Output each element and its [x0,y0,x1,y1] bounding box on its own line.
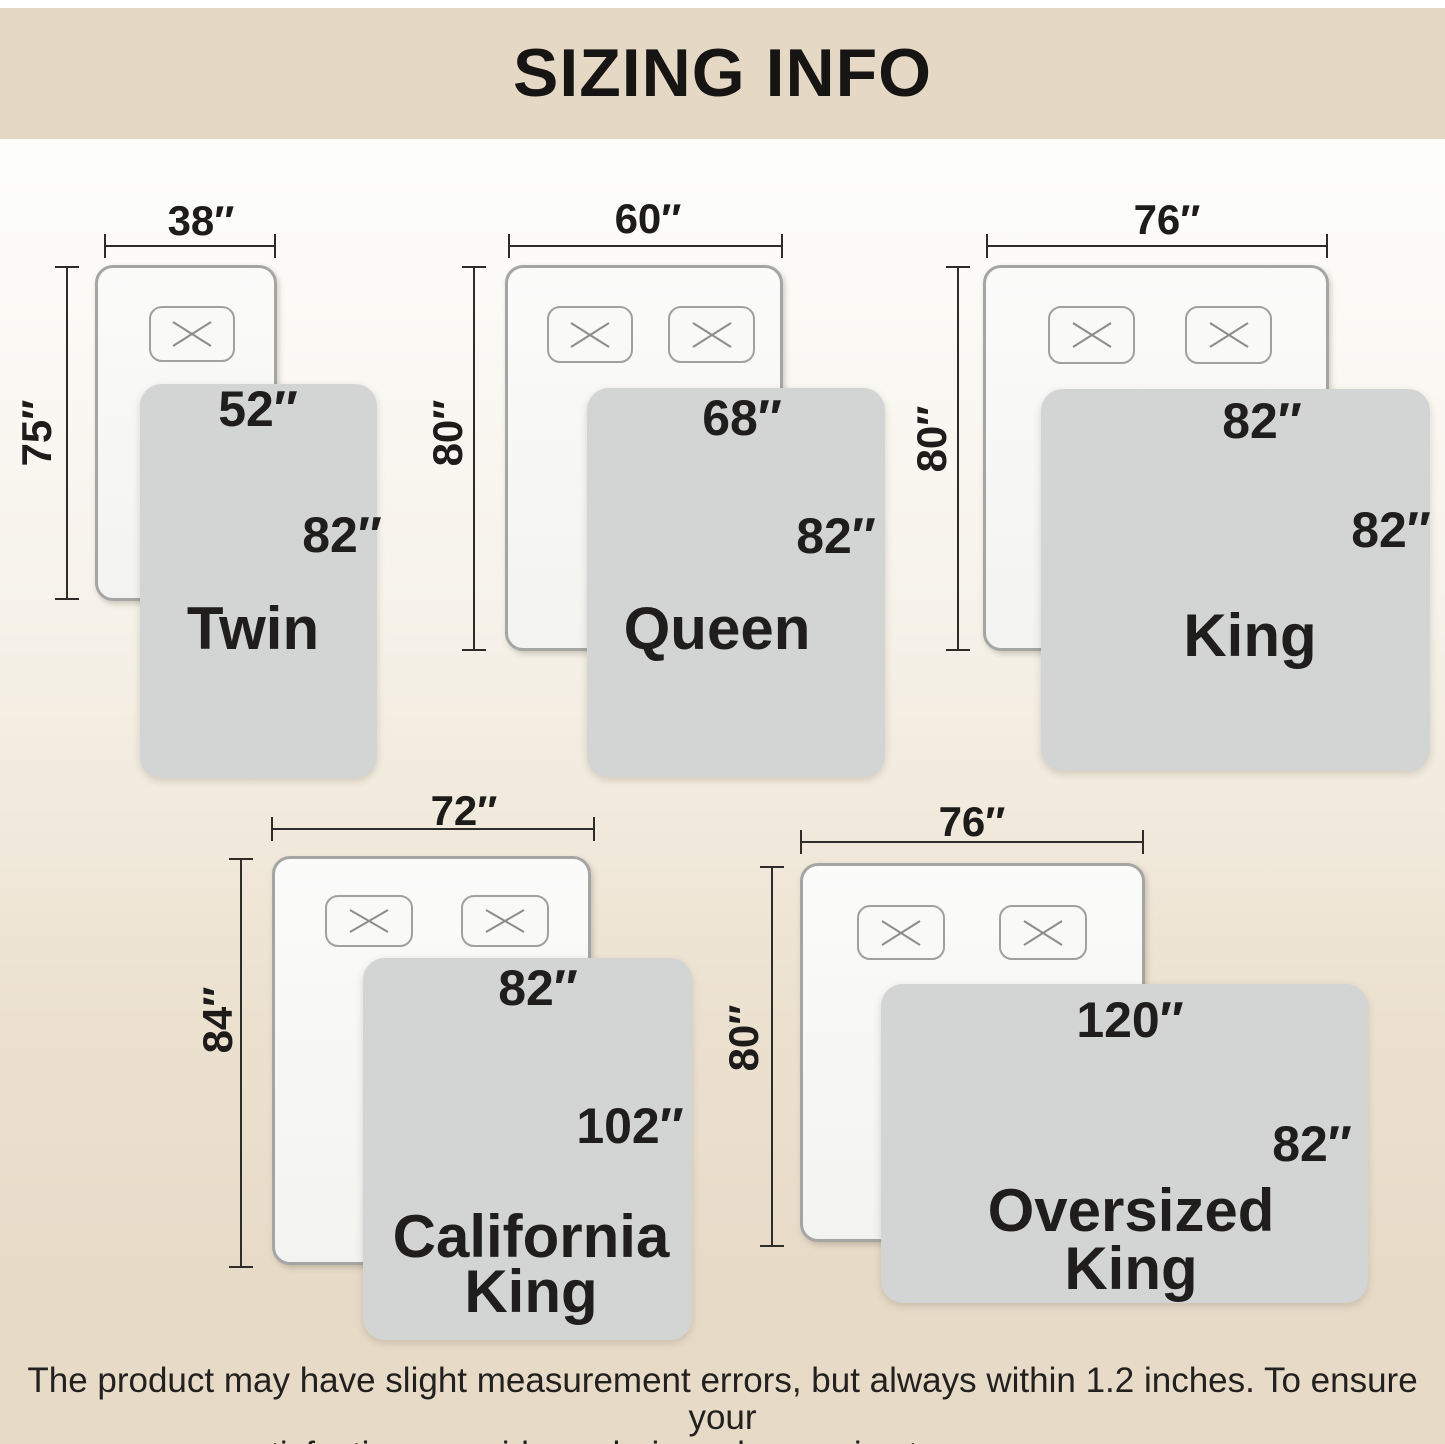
disclaimer-line-2: satisfaction, consider ordering a larger… [0,1436,1445,1444]
bed-width-dimension-line [800,841,1144,843]
size-name: California King [393,1209,670,1319]
pillow-icon [461,895,549,947]
size-name-line: King [988,1240,1275,1298]
bed-width-dimension-line [986,245,1328,247]
bed-length-dimension-line [771,866,773,1247]
bed-length-dimension-line [66,266,68,600]
pillow-icon [1185,306,1272,364]
header-band: SIZING INFO [0,8,1445,139]
bed-width-dimension-line [508,245,783,247]
blanket-length-label: 82″ [1351,501,1431,559]
pillow-icon [149,306,235,362]
size-name: Queen [624,600,811,658]
pillow-x-icon [483,907,527,935]
size-name-line: King [1183,607,1316,665]
bed-length-label: 80″ [720,1005,768,1072]
blanket-length-label: 82″ [1272,1115,1352,1173]
blanket-width-label: 82″ [1222,392,1302,450]
blanket-length-label: 82″ [302,506,382,564]
pillow-icon [668,306,755,363]
disclaimer-line-1: The product may have slight measurement … [0,1362,1445,1436]
blanket-width-label: 52″ [218,380,298,438]
sizing-info-infographic: SIZING INFO 38″ 75″ 52″ 82″ Twin 60″ 80″… [0,0,1445,1444]
pillow-x-icon [879,918,923,948]
blanket-width-label: 82″ [498,959,578,1017]
bed-width-label: 76″ [1134,196,1201,244]
blanket-width-label: 68″ [702,389,782,447]
pillow-icon [547,306,633,363]
blanket-width-label: 120″ [1076,991,1183,1049]
size-name-line: Twin [187,600,319,658]
bed-length-dimension-line [473,266,475,651]
blanket-shape [140,384,377,778]
pillow-x-icon [568,320,612,350]
bed-length-label: 80″ [908,406,956,473]
pillow-x-icon [690,320,734,350]
pillow-icon [1048,306,1135,364]
size-name-line: King [393,1264,670,1319]
bed-width-dimension-line [104,245,276,247]
bed-width-label: 76″ [939,798,1006,846]
size-name-line: Queen [624,600,811,658]
bed-length-label: 75″ [13,400,61,467]
bed-length-dimension-line [240,858,242,1268]
pillow-x-icon [347,907,391,935]
disclaimer-text: The product may have slight measurement … [0,1362,1445,1444]
page-title: SIZING INFO [0,8,1445,139]
pillow-x-icon [1021,918,1065,948]
pillow-icon [999,905,1087,960]
bed-width-label: 60″ [615,195,682,243]
pillow-x-icon [170,319,214,349]
size-name-line: California [393,1209,670,1264]
blanket-length-label: 102″ [576,1097,683,1155]
pillow-icon [325,895,413,947]
size-name-line: Oversized [988,1182,1275,1240]
size-name: Oversized King [988,1182,1275,1298]
bed-length-label: 80″ [424,400,472,467]
size-name: Twin [187,600,319,658]
bed-width-dimension-line [271,828,595,830]
bed-length-label: 84″ [194,987,242,1054]
blanket-length-label: 82″ [796,507,876,565]
bed-length-dimension-line [957,266,959,651]
pillow-x-icon [1070,320,1114,350]
pillow-x-icon [1207,320,1251,350]
bed-width-label: 38″ [168,197,235,245]
size-name: King [1183,607,1316,665]
pillow-icon [857,905,945,960]
